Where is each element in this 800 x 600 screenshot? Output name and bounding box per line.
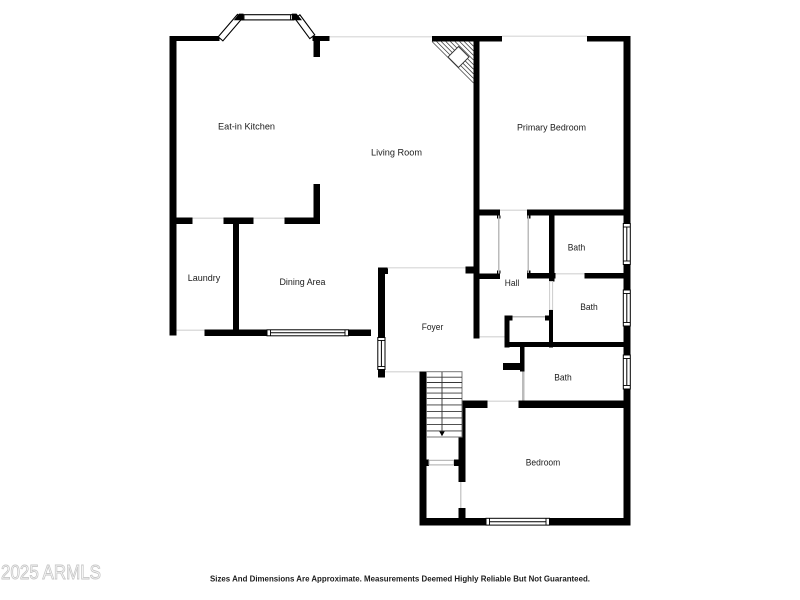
svg-text:Sizes And Dimensions Are Appro: Sizes And Dimensions Are Approximate. Me…: [210, 574, 590, 584]
svg-text:Living Room: Living Room: [371, 148, 422, 158]
svg-text:Bath: Bath: [554, 373, 572, 383]
svg-text:Bath: Bath: [580, 302, 598, 312]
svg-text:Dining Area: Dining Area: [280, 277, 326, 287]
svg-text:Bedroom: Bedroom: [526, 458, 561, 468]
svg-text:Foyer: Foyer: [422, 322, 444, 332]
svg-text:Primary Bedroom: Primary Bedroom: [517, 123, 586, 133]
svg-text:Bath: Bath: [568, 243, 586, 253]
svg-text:Hall: Hall: [505, 278, 520, 288]
svg-text:Laundry: Laundry: [188, 273, 221, 283]
svg-text:Eat-in Kitchen: Eat-in Kitchen: [218, 122, 275, 132]
svg-text:2025 ARMLS: 2025 ARMLS: [1, 562, 101, 584]
